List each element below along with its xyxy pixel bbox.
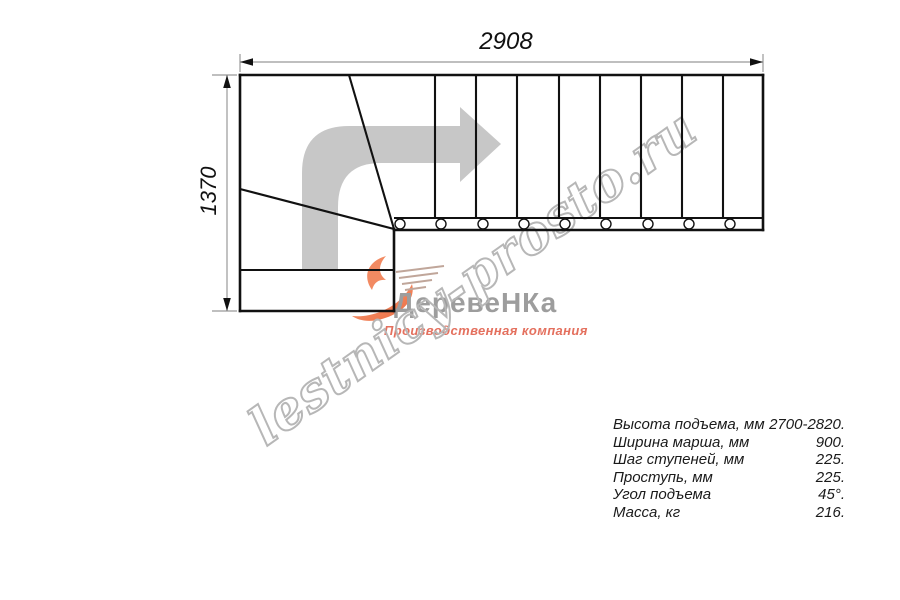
- spec-value: 45°.: [818, 486, 845, 504]
- spec-label: Проступь, мм: [613, 469, 713, 487]
- baluster-circles: [395, 219, 735, 229]
- spec-row-mass: Масса, кг 216.: [613, 504, 845, 522]
- spec-value: 2700-2820.: [769, 416, 845, 434]
- dimension-total-width: 1370: [185, 165, 233, 217]
- spec-label: Высота подъема, мм: [613, 416, 765, 434]
- spec-row-step-pitch: Шаг ступеней, мм 225.: [613, 451, 845, 469]
- spec-table: Высота подъема, мм 2700-2820. Ширина мар…: [613, 416, 845, 521]
- spec-value: 225.: [816, 451, 845, 469]
- spec-label: Масса, кг: [613, 504, 680, 522]
- spec-row-flight-width: Ширина марша, мм 900.: [613, 434, 845, 452]
- spec-label: Угол подъема: [613, 486, 711, 504]
- spec-value: 216.: [816, 504, 845, 522]
- spec-value: 900.: [816, 434, 845, 452]
- spec-label: Ширина марша, мм: [613, 434, 749, 452]
- spec-row-tread: Проступь, мм 225.: [613, 469, 845, 487]
- spec-row-height: Высота подъема, мм 2700-2820.: [613, 416, 845, 434]
- staircase-drawing-page: ДеревеНКа Производственная компания lest…: [0, 0, 900, 600]
- spec-label: Шаг ступеней, мм: [613, 451, 744, 469]
- spec-value: 225.: [816, 469, 845, 487]
- direction-arrow-icon: [302, 107, 501, 270]
- dimension-lines: [212, 54, 763, 311]
- spec-row-angle: Угол подъема 45°.: [613, 486, 845, 504]
- dimension-total-length: 2908: [453, 28, 559, 56]
